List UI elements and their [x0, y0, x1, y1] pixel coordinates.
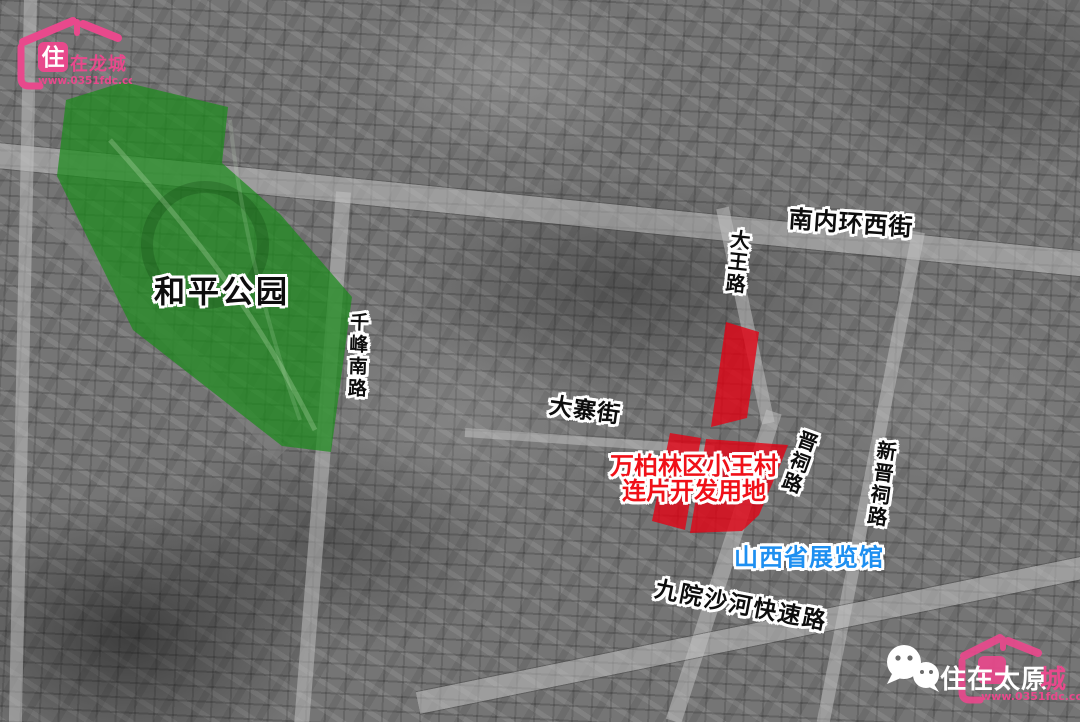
brand-text: 在龙城: [70, 53, 127, 75]
road-label-qianfeng-nanlu: 千峰南路: [345, 312, 368, 401]
exhibition-hall-label: 山西省展览馆: [734, 545, 884, 570]
development-area-label-line1: 万柏林区小王村: [610, 452, 778, 480]
bottom-right-watermark: 住在太原 城 www.0351fdc.com: [880, 622, 1080, 722]
park-area-highlight: [57, 82, 352, 452]
top-left-watermark: 住 在龙城 www.0351fdc.com: [12, 14, 132, 100]
house-logo-icon: 住 在龙城 www.0351fdc.com: [12, 14, 132, 96]
brand-url: www.0351fdc.com: [981, 690, 1080, 703]
development-area-highlight-north: [711, 322, 759, 427]
house-roof-right: [83, 24, 118, 38]
wechat-icon: [887, 645, 939, 692]
house-roof-left: [23, 21, 73, 42]
house-logo-char: 住: [42, 44, 65, 71]
road-label-dawang-lu: 大王路: [722, 228, 750, 296]
area-highlights-overlay: [0, 0, 1080, 722]
satellite-map-stage: 和平公园 千峰南路 南内环西街 大王路 大寨街 晋祠路 新晋祠路 九院沙河快速路…: [0, 0, 1080, 722]
development-area-label-line2: 连片开发用地: [622, 477, 766, 505]
park-area-label: 和平公园: [154, 277, 290, 310]
development-area-label: 万柏林区小王村 连片开发用地: [610, 454, 778, 504]
brand-url: www.0351fdc.com: [38, 75, 132, 87]
